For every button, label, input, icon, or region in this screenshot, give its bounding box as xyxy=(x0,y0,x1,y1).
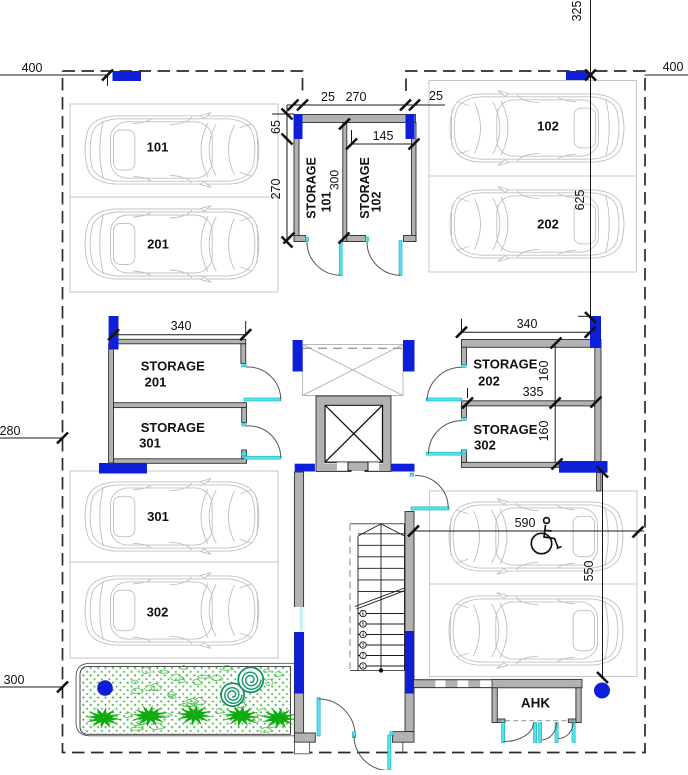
svg-text:301: 301 xyxy=(147,509,169,524)
svg-text:6: 6 xyxy=(362,611,365,617)
svg-text:STORAGE: STORAGE xyxy=(141,359,205,374)
svg-text:STORAGE: STORAGE xyxy=(141,420,205,435)
svg-text:STORAGE: STORAGE xyxy=(473,422,537,437)
svg-text:102: 102 xyxy=(537,119,559,134)
svg-text:302: 302 xyxy=(147,605,169,620)
svg-text:340: 340 xyxy=(517,317,538,331)
svg-text:301: 301 xyxy=(139,436,161,451)
svg-text:590: 590 xyxy=(515,516,536,530)
svg-text:270: 270 xyxy=(346,90,367,104)
svg-text:335: 335 xyxy=(523,385,544,399)
svg-text:3: 3 xyxy=(362,643,365,649)
svg-text:202: 202 xyxy=(537,217,559,232)
svg-text:400: 400 xyxy=(22,61,43,75)
svg-text:25: 25 xyxy=(321,90,335,104)
svg-text:25: 25 xyxy=(429,89,443,103)
svg-text:300: 300 xyxy=(328,170,342,190)
svg-text:4: 4 xyxy=(362,632,365,638)
svg-text:1: 1 xyxy=(362,664,365,670)
svg-text:101: 101 xyxy=(320,192,334,213)
svg-text:AHK: AHK xyxy=(521,696,550,711)
svg-text:340: 340 xyxy=(171,319,192,333)
svg-text:2: 2 xyxy=(362,653,365,659)
svg-text:550: 550 xyxy=(582,561,596,582)
svg-text:160: 160 xyxy=(537,421,551,442)
svg-text:145: 145 xyxy=(373,129,394,143)
svg-text:625: 625 xyxy=(573,190,587,211)
svg-text:202: 202 xyxy=(478,374,500,389)
svg-text:201: 201 xyxy=(147,237,169,252)
svg-text:STORAGE: STORAGE xyxy=(305,157,319,219)
svg-text:5: 5 xyxy=(362,622,365,628)
svg-text:325: 325 xyxy=(570,1,584,22)
svg-text:270: 270 xyxy=(269,179,283,200)
svg-text:160: 160 xyxy=(537,361,551,382)
svg-text:280: 280 xyxy=(0,424,20,438)
svg-text:101: 101 xyxy=(147,140,169,155)
svg-text:300: 300 xyxy=(4,673,25,687)
svg-text:102: 102 xyxy=(370,192,384,213)
svg-text:302: 302 xyxy=(474,438,496,453)
svg-text:400: 400 xyxy=(663,60,684,74)
svg-text:201: 201 xyxy=(145,375,167,390)
svg-text:65: 65 xyxy=(269,120,283,134)
svg-text:STORAGE: STORAGE xyxy=(473,357,537,372)
